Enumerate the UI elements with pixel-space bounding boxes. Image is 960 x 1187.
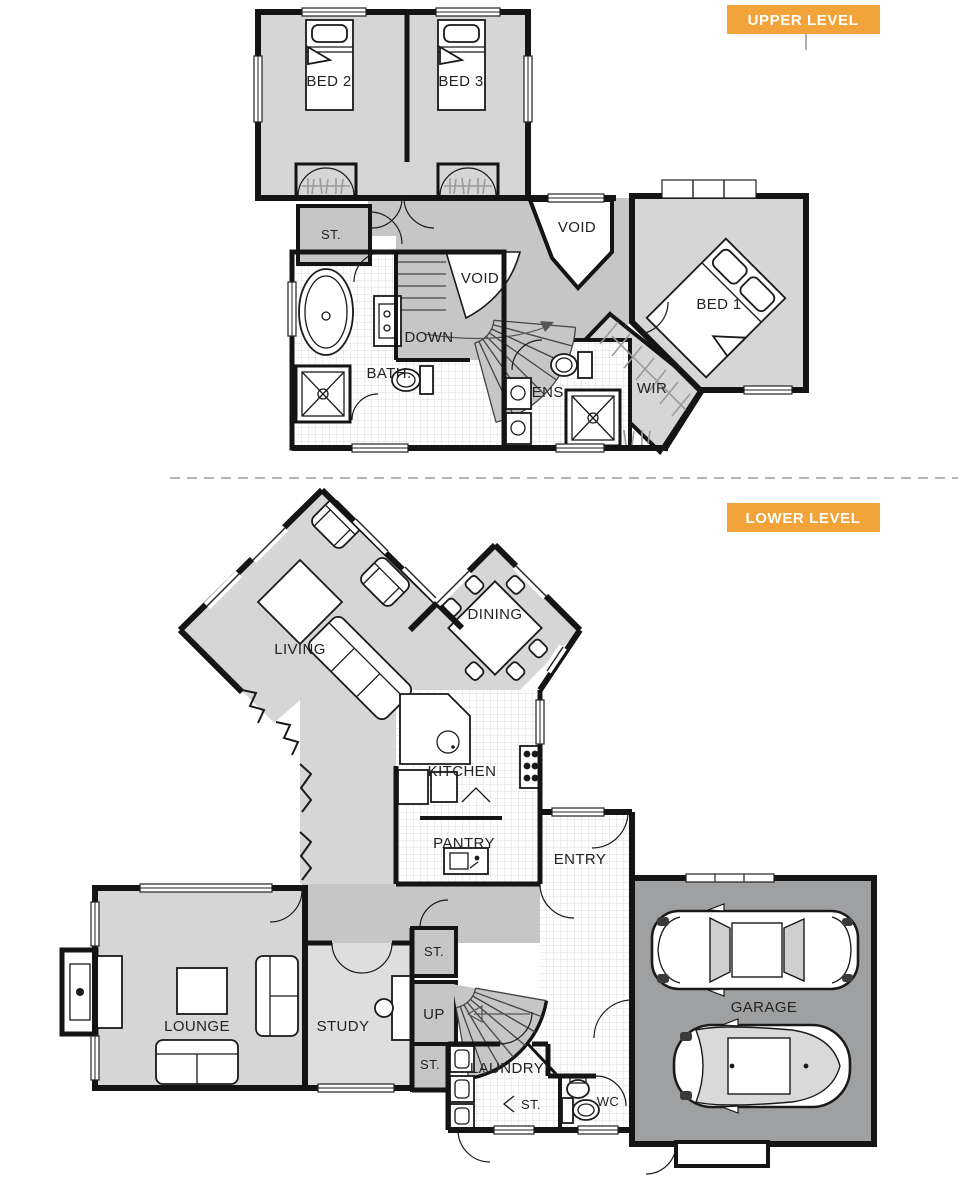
room-label-void-b: VOID <box>461 270 499 287</box>
room-label-entry: ENTRY <box>554 851 607 868</box>
ens-toilet-icon <box>551 352 592 378</box>
room-label-laundry: LAUNDRY <box>470 1060 544 1077</box>
upper-level-badge-label: UPPER LEVEL <box>748 12 859 29</box>
room-label-dining: DINING <box>468 606 523 623</box>
bathtub-icon <box>299 269 353 355</box>
lounge-sofa-right-icon <box>256 956 298 1036</box>
upper-level-plan: BED 2 BED 3 ST. VOID VOID DOWN BATH. ENS… <box>254 8 806 452</box>
lounge-sofa-bottom-icon <box>156 1040 238 1084</box>
floor-plan: BED 2 BED 3 ST. VOID VOID DOWN BATH. ENS… <box>0 0 960 1187</box>
garage-car2-icon <box>674 1019 850 1113</box>
hall-tile-floor <box>540 935 632 1076</box>
bed2-bed-icon <box>306 20 353 110</box>
ens-shower-icon <box>566 390 620 446</box>
room-label-wir: WIR <box>637 380 667 397</box>
cooktop-icon <box>520 746 540 788</box>
room-label-pantry: PANTRY <box>433 835 495 852</box>
room-label-void-a: VOID <box>558 219 596 236</box>
bed3-wardrobe-icon <box>438 164 498 198</box>
room-label-garage: GARAGE <box>731 999 798 1016</box>
room-label-lounge: LOUNGE <box>164 1018 230 1035</box>
lower-level-plan: LIVING DINING KITCHEN PANTRY ENTRY LOUNG… <box>62 490 874 1174</box>
lounge-coffee-table-icon <box>177 968 227 1014</box>
room-label-store-laundry: ST. <box>521 1097 541 1112</box>
bath-shower-icon <box>296 366 350 422</box>
wc-basin-icon <box>567 1078 589 1098</box>
garage-car1-icon <box>652 904 858 996</box>
room-label-study: STUDY <box>317 1018 370 1035</box>
room-label-bed3: BED 3 <box>438 73 483 90</box>
room-label-living: LIVING <box>274 641 326 658</box>
upper-level-badge: UPPER LEVEL <box>727 5 880 50</box>
lower-level-badge: LOWER LEVEL <box>727 503 880 532</box>
room-label-ens: ENS. <box>532 384 569 401</box>
room-label-up: UP <box>423 1006 445 1023</box>
room-label-wc: WC <box>597 1094 619 1109</box>
bed3-bed-icon <box>438 20 485 110</box>
room-label-bed2: BED 2 <box>306 73 351 90</box>
room-label-bath: BATH. <box>366 365 411 382</box>
room-label-bed1: BED 1 <box>696 296 741 313</box>
bed2-wardrobe-icon <box>296 164 356 198</box>
lower-level-badge-label: LOWER LEVEL <box>746 510 861 527</box>
room-label-kitchen: KITCHEN <box>428 763 497 780</box>
room-label-store-upper: ST. <box>321 227 341 242</box>
room-label-down: DOWN <box>404 329 453 346</box>
room-label-store-hall: ST. <box>424 944 444 959</box>
room-label-store-study: ST. <box>420 1057 440 1072</box>
floorplan-page: BED 2 BED 3 ST. VOID VOID DOWN BATH. ENS… <box>0 0 960 1187</box>
kitchen-island-icon <box>400 694 470 764</box>
entry-floor <box>540 812 632 935</box>
